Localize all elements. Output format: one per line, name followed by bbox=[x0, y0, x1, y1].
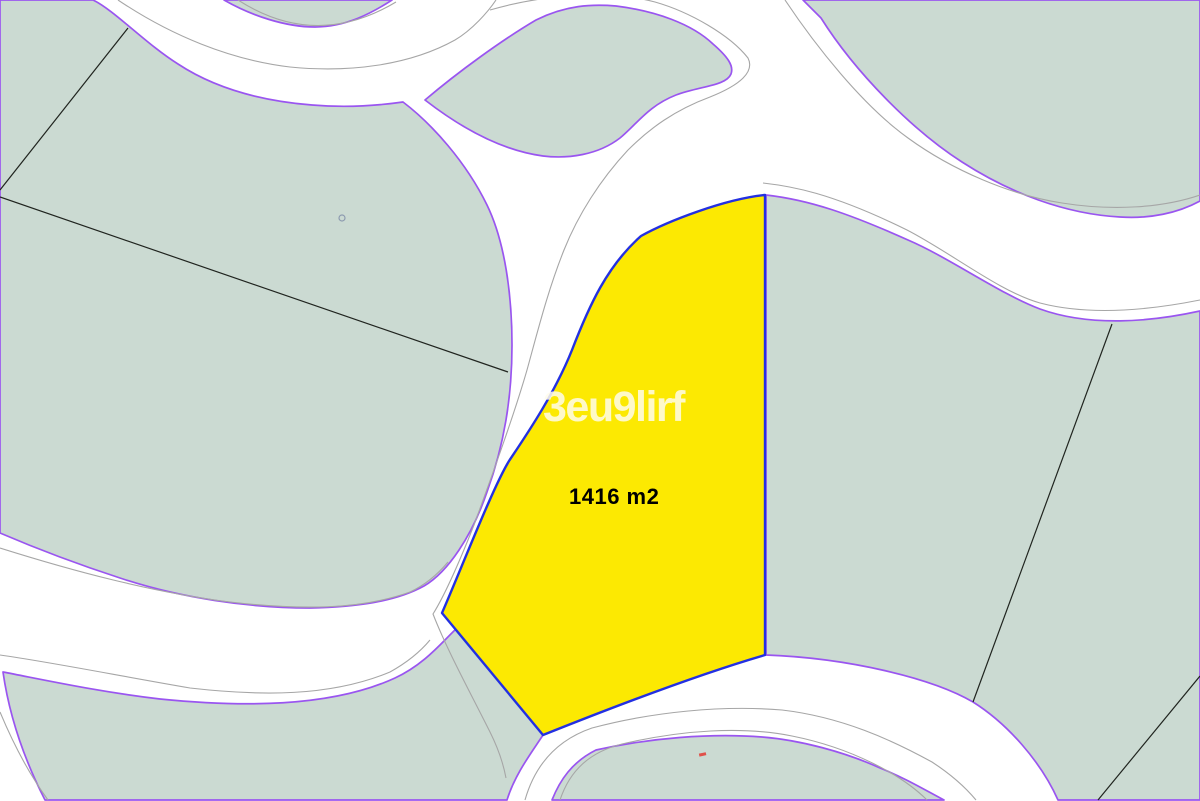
watermark-text: 3eu9lirf bbox=[543, 383, 686, 431]
map-viewport: 3eu9lirf 1416 m2 bbox=[0, 0, 1200, 801]
parcel-area-label: 1416 m2 bbox=[569, 484, 659, 509]
map-canvas: 3eu9lirf 1416 m2 bbox=[0, 0, 1200, 801]
